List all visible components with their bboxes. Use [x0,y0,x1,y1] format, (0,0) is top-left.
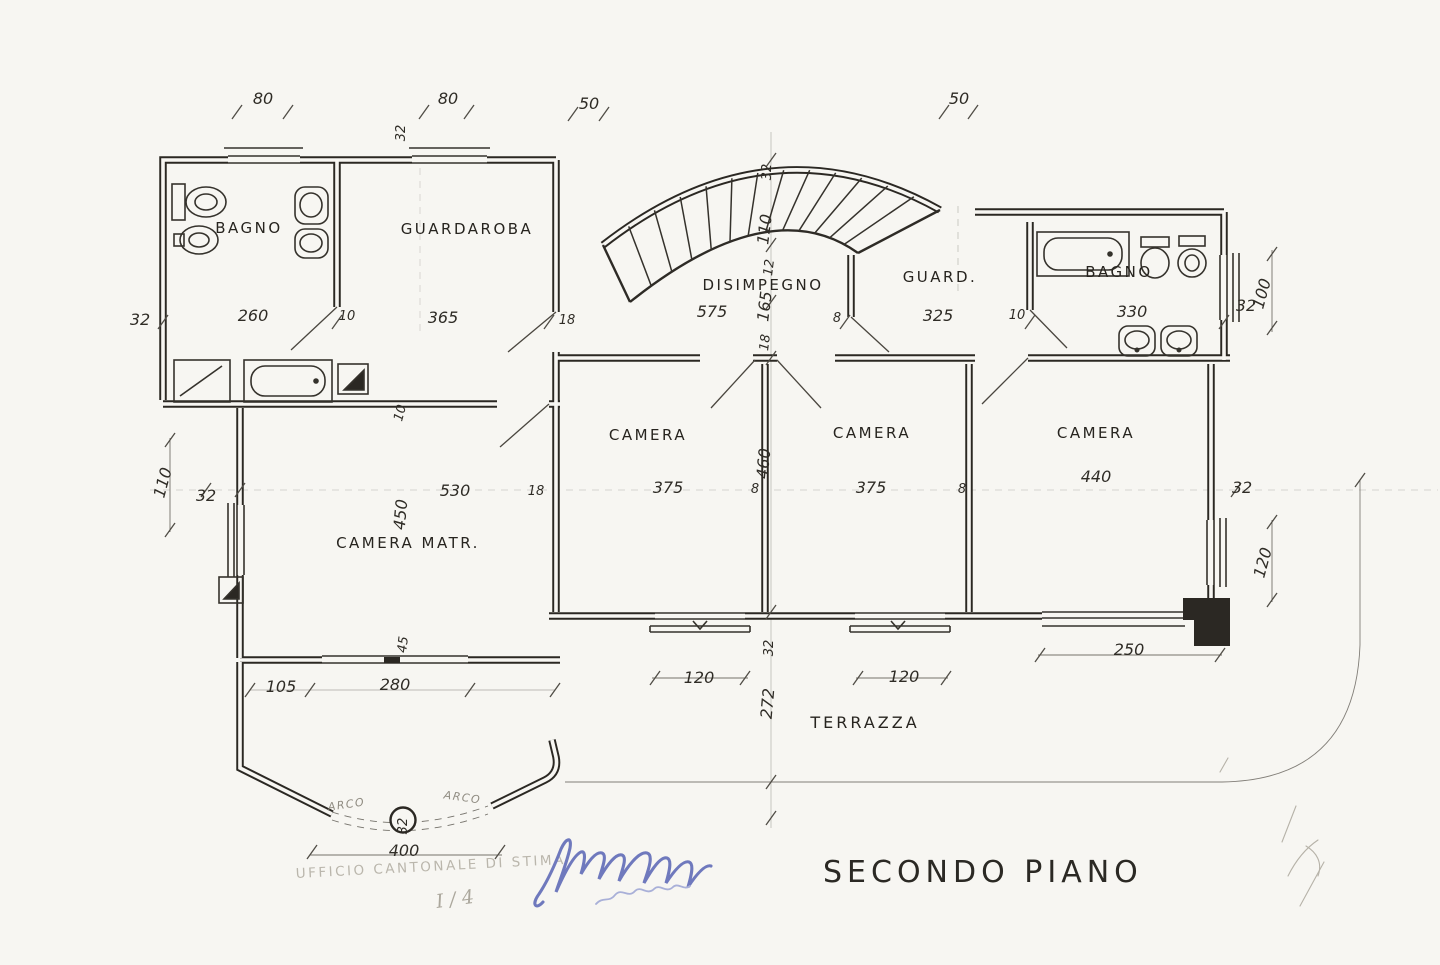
dimension-label: 440 [1081,467,1112,486]
toilet-bowl-icon [195,194,217,210]
dimension-label: 8 [751,482,759,497]
dimension-label: 32 [130,310,150,329]
dimension-label: 10 [1009,308,1026,323]
window-camera2 [850,613,950,632]
door-camera-2 [777,360,821,408]
room-label-guardaroba: GUARDAROBA [401,220,534,238]
dim-tick [464,105,474,119]
toilet-icon [186,187,226,217]
dimension-label: 18 [757,333,774,351]
stair-tread [815,178,862,233]
sink-basin-icon [300,234,322,252]
dimension-label: 460 [753,447,775,479]
window-chevron-1 [693,621,707,629]
bidet-bowl-icon [189,233,209,247]
toilet-bowl-icon [1185,255,1199,271]
dimension-label: 400 [389,841,420,860]
dimension-label: 10 [339,309,356,324]
dimension-labels: 8080505032323226010365185751101216518832… [130,89,1276,860]
stair-tread [844,197,914,245]
office-stamp: UFFICIO CANTONALE DI STIMA [295,852,566,882]
dimension-label: 32 [762,640,777,657]
dimension-label: 530 [440,481,471,500]
toilet-tank-icon [172,184,185,220]
dim-tick [307,845,317,859]
wall-core [492,740,557,806]
signature-stroke [535,840,711,906]
room-label-camera-2: CAMERA [833,424,911,442]
room-label-bagno-right: BAGNO [1085,263,1152,281]
sink-drain-icon [1135,348,1138,351]
dimension-label: 450 [390,498,412,530]
room-label-terrazza: TERRAZZA [809,713,919,732]
signature [535,840,711,906]
pencil-scribbles [1220,758,1324,906]
dimension-label: 32 [1232,478,1252,497]
flue-triangle-icon [224,583,239,599]
dim-tick [568,107,578,121]
scribble [1300,862,1324,906]
dimension-label: 365 [428,308,459,327]
scribble [1288,840,1318,876]
dimension-label: 110 [150,465,176,499]
stairs-left-cap [603,245,630,302]
dimension-label: 110 [753,213,776,246]
dimension-label: 18 [528,484,545,499]
dimension-label: 32 [760,164,775,181]
stair-tread [730,178,732,241]
dimension-label: 280 [380,675,411,694]
stair-tread [830,186,888,238]
scribble [1220,758,1228,772]
dimension-label: 8 [958,482,966,497]
sink-drain-icon [1177,348,1180,351]
arc-label: ARCO [442,788,482,806]
dim-tick [840,315,850,329]
window-left [228,503,244,577]
door-bagno-right [1030,310,1067,348]
dimension-label: 250 [1114,640,1145,659]
dimension-label: 12 [761,258,778,276]
bathtub-drain-icon [1108,252,1112,256]
sink-basin-icon [300,193,322,217]
bidet-icon [180,226,218,254]
dimension-label: 165 [753,290,776,323]
door-camera-3 [982,358,1028,404]
stair-tread [629,226,652,285]
stairs-right-cap [858,210,940,253]
room-label-camera-3: CAMERA [1057,424,1135,442]
flue-triangle-icon [344,370,364,390]
dimension-label: 32 [396,818,411,835]
toilet-tank-icon [1141,237,1169,247]
wall [492,740,557,806]
stair-tread [706,186,711,249]
dim-tick [232,105,242,119]
dim-tick [419,105,429,119]
window-right-120 [1207,518,1226,587]
dimension-label: 32 [394,125,409,142]
stair-tread [654,210,671,271]
shower-mark-icon [180,366,222,396]
bidet-stub-icon [174,234,184,246]
door-guardaroba [508,312,556,352]
toilet-tank-icon [1179,236,1205,246]
stair-tread [680,197,692,260]
dimension-label: 120 [889,667,920,686]
dimension-label: 325 [923,306,954,325]
door-camera-matr [500,404,549,447]
dimension-label: 120 [684,668,715,687]
terrace-edge [565,480,1360,782]
dimension-label: 260 [238,306,269,325]
bathtub-drain-icon [314,379,318,383]
dimension-label: 45 [395,635,412,653]
scribble [1282,806,1296,842]
dim-tick [968,105,978,119]
sink-basin-icon [1125,331,1149,349]
dimension-label: 18 [559,313,576,328]
room-label-bagno-left: BAGNO [215,219,282,237]
dimension-label: 8 [833,311,841,326]
door-camera-1 [711,360,755,408]
dim-tick [939,105,949,119]
dimension-label: 50 [949,89,969,108]
dimension-label: 32 [196,486,216,505]
dimension-label: 272 [757,687,779,719]
dimension-label: 330 [1117,302,1148,321]
dim-tick [1025,315,1035,329]
door-bagno-left [291,307,337,350]
toilet-icon [1178,249,1206,277]
window-chevron-2 [891,621,905,629]
dimension-label: 80 [438,89,458,108]
pencil-note: I / 4 [434,886,476,913]
window-top-1 [224,148,303,163]
dimension-label: 100 [1249,276,1275,310]
door-guard [851,317,889,352]
room-labels: BAGNOGUARDAROBADISIMPEGNOGUARD.BAGNOCAME… [215,219,1152,732]
dim-tick [599,107,609,121]
drawing-title: SECONDO PIANO [823,855,1143,890]
dimension-label: 80 [253,89,273,108]
dimension-label: 375 [653,478,684,497]
signature-second-line [596,885,690,904]
door-camera3-terrace [1042,612,1185,626]
scribble [1306,846,1320,876]
dimension-label: 375 [856,478,887,497]
dim-tick [283,105,293,119]
corner-pier [1183,598,1230,646]
window-top-2 [409,148,490,163]
arc-label: ARCO [326,795,366,813]
dimension-label: 575 [697,302,728,321]
floorplan-page: BAGNOGUARDAROBADISIMPEGNOGUARD.BAGNOCAME… [0,0,1440,965]
sink-basin-icon [1167,331,1191,349]
dimension-label: 50 [579,94,599,113]
room-label-guard: GUARD. [903,268,978,286]
dimension-label: 105 [266,677,297,696]
floorplan-drawing: BAGNOGUARDAROBADISIMPEGNOGUARD.BAGNOCAME… [0,0,1440,965]
room-label-camera-1: CAMERA [609,426,687,444]
room-label-camera-matr: CAMERA MATR. [336,534,480,552]
